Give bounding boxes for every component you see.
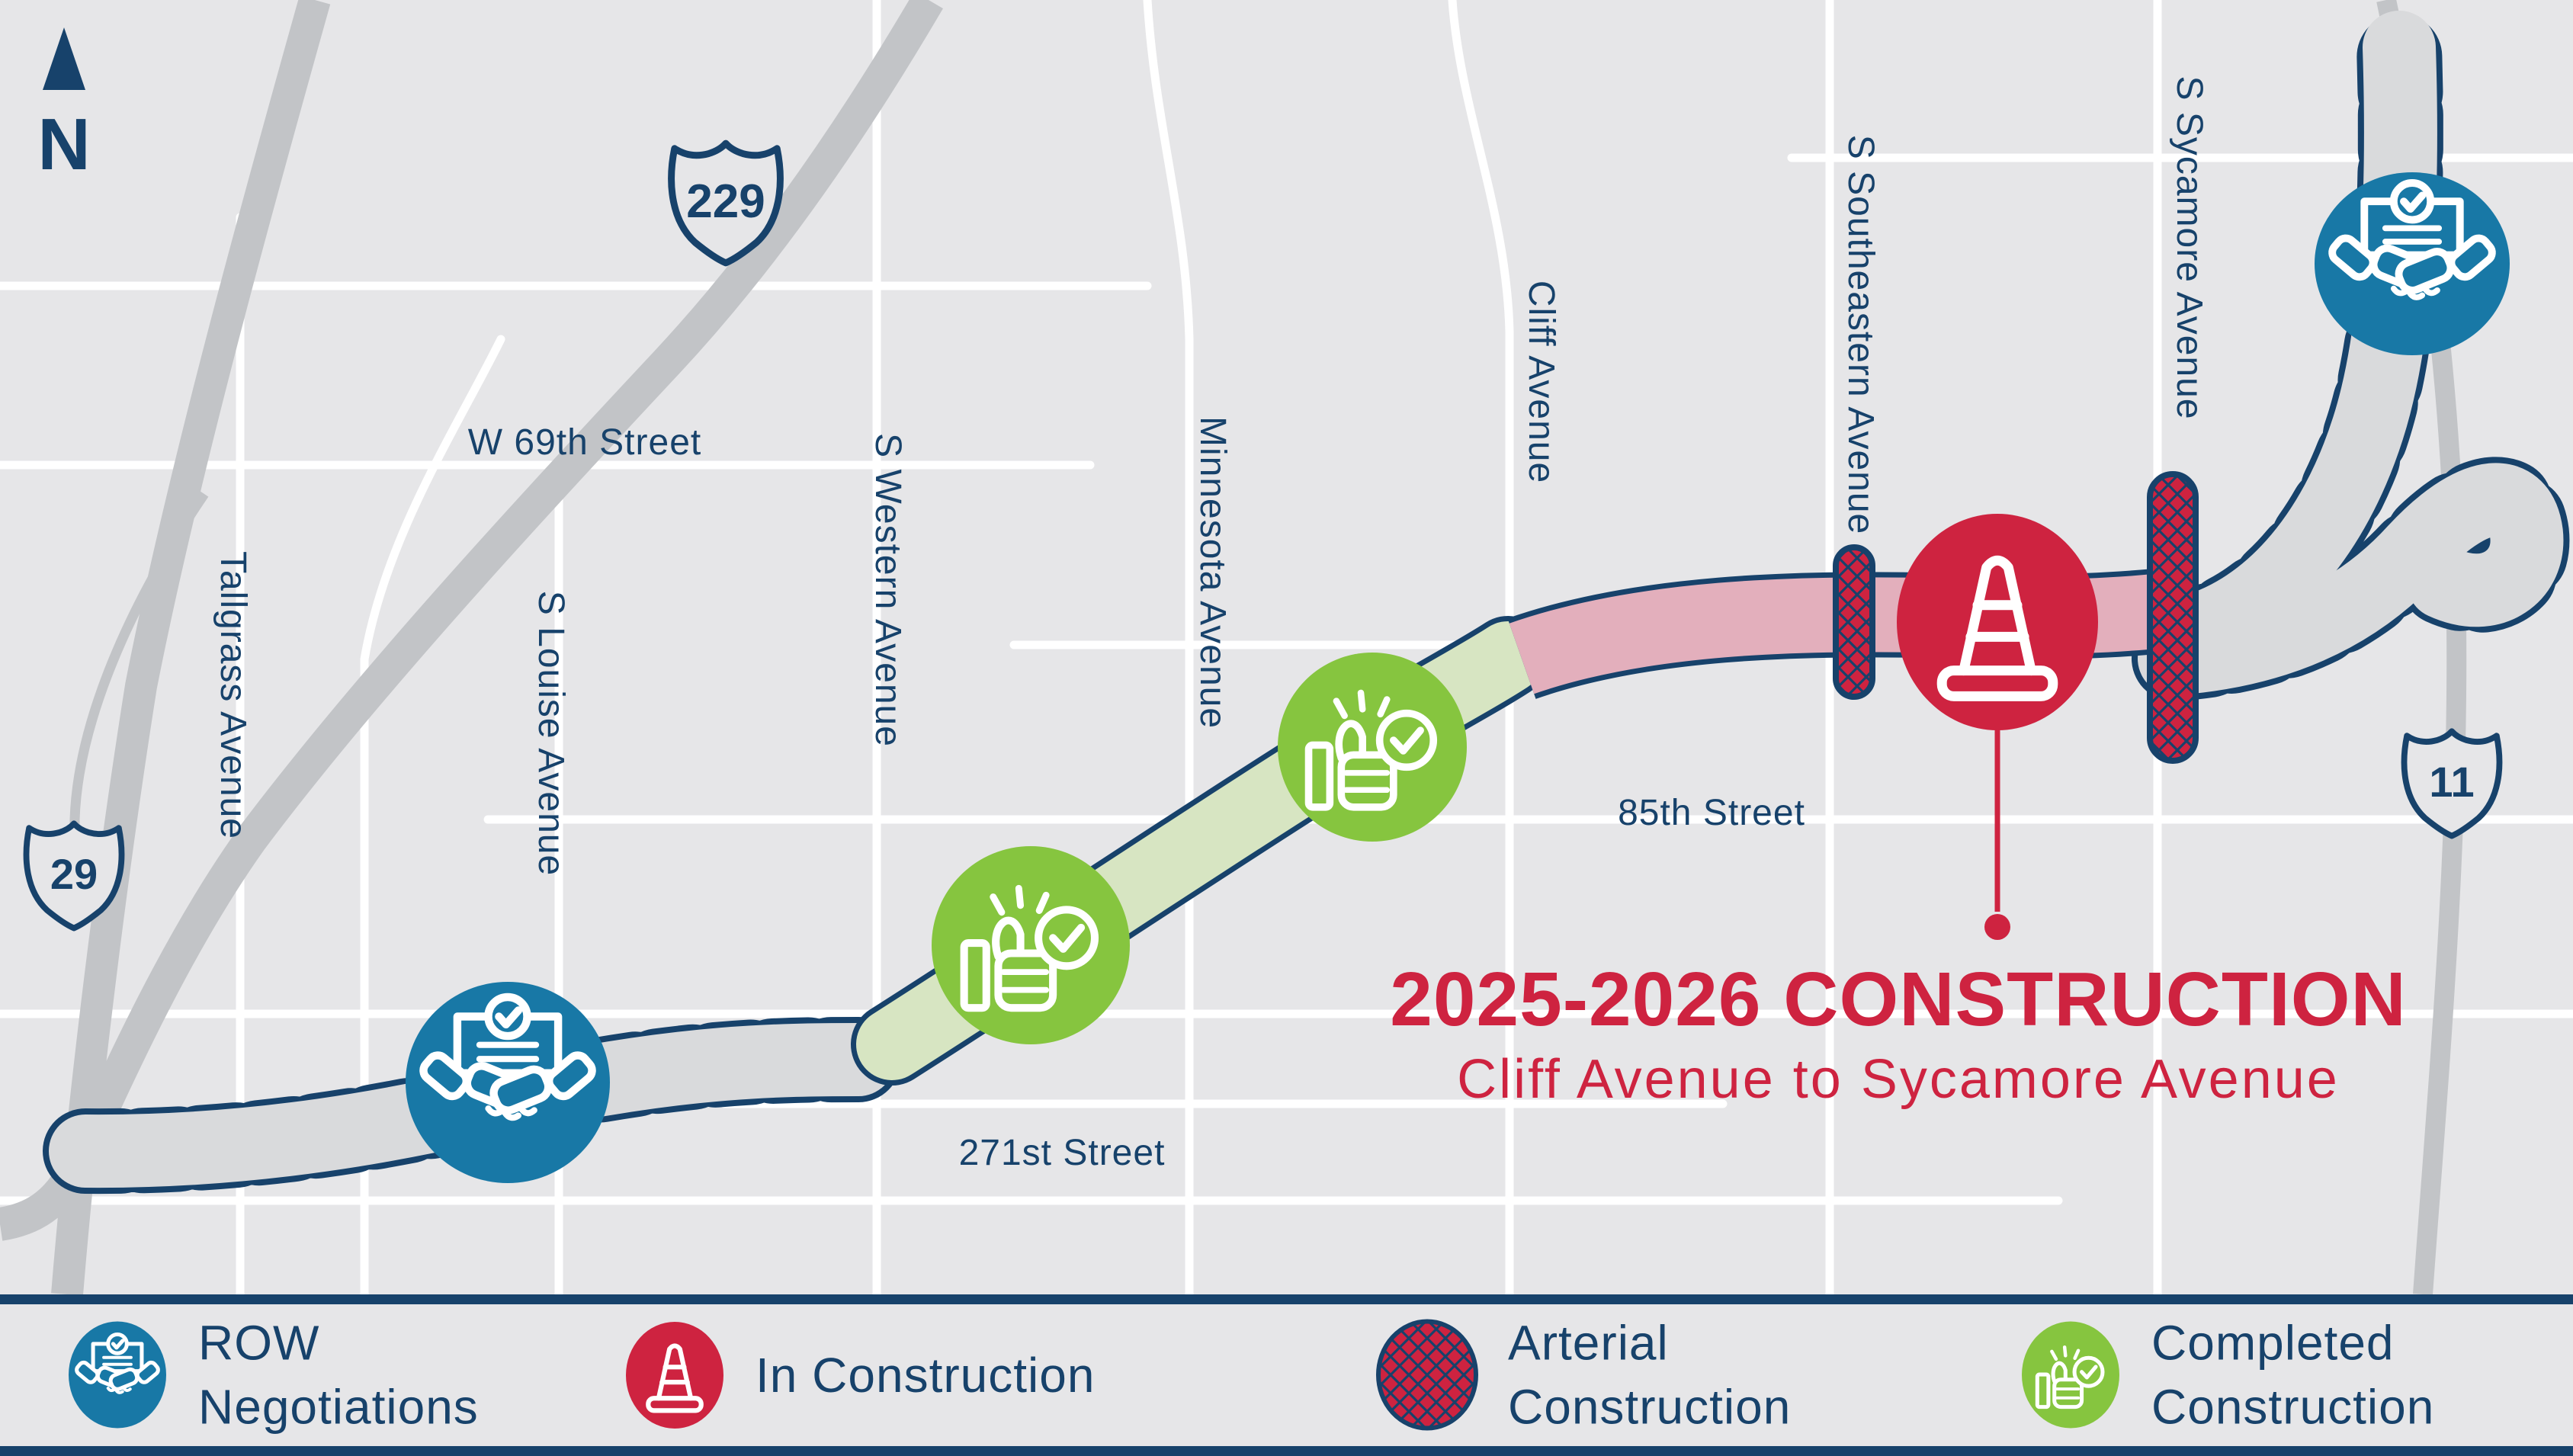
street-label-louise: S Louise Avenue (531, 591, 571, 876)
legend-label: In Construction (756, 1343, 1095, 1407)
construction-callout: 2025-2026 CONSTRUCTION Cliff Avenue to S… (1390, 957, 2407, 1110)
arterial-pill-sycamore (2150, 474, 2196, 761)
handshake-icon (64, 1317, 171, 1433)
legend-label: Arterial Construction (1508, 1311, 1866, 1440)
legend-item-completed-construction: Completed Construction (2017, 1311, 2563, 1440)
svg-text:11: 11 (2429, 758, 2474, 806)
legend-item-in-construction: In Construction (621, 1317, 1095, 1433)
in-construction-badge (1897, 514, 2098, 730)
street-label-cliff: Cliff Avenue (1521, 281, 1561, 483)
street-label-western: S Western Avenue (868, 433, 908, 747)
svg-text:29: 29 (50, 850, 98, 898)
legend-label: Completed Construction (2151, 1311, 2563, 1440)
legend-item-arterial-construction: Arterial Construction (1374, 1311, 1866, 1440)
callout-subtitle: Cliff Avenue to Sycamore Avenue (1457, 1049, 2340, 1110)
construction-status-infographic: 229 29 11 W 69th Street Tallgrass Avenue… (0, 0, 2573, 1456)
construction-map: 229 29 11 W 69th Street Tallgrass Avenue… (0, 0, 2573, 1294)
svg-text:229: 229 (686, 175, 765, 228)
completed-badge-1 (932, 846, 1130, 1044)
street-label-sycamore: S Sycamore Avenue (2169, 75, 2209, 419)
traffic-cone-icon (621, 1317, 728, 1433)
legend-bar: ROW Negotiations In Construction Arteria… (0, 1294, 2573, 1456)
completed-badge-2 (1278, 653, 1467, 842)
street-label-85th: 85th Street (1618, 793, 1805, 833)
legend-item-row-negotiations: ROW Negotiations (64, 1311, 503, 1440)
row-negotiations-badge-northeast (2315, 172, 2510, 355)
street-label-tallgrass: Tallgrass Avenue (213, 551, 253, 839)
crosshatch-icon (1374, 1317, 1481, 1433)
street-label-minnesota: Minnesota Avenue (1192, 416, 1233, 729)
street-label-271st: 271st Street (959, 1133, 1166, 1173)
callout-title: 2025-2026 CONSTRUCTION (1390, 957, 2407, 1042)
row-negotiations-badge-west (406, 982, 610, 1183)
street-label-w69th: W 69th Street (468, 422, 701, 463)
legend-label: ROW Negotiations (198, 1311, 503, 1440)
street-label-southeastern: S Southeastern Avenue (1840, 135, 1881, 535)
north-label: N (37, 104, 90, 185)
thumbs-up-icon (2017, 1317, 2124, 1433)
arterial-pill-southeastern (1836, 547, 1872, 697)
